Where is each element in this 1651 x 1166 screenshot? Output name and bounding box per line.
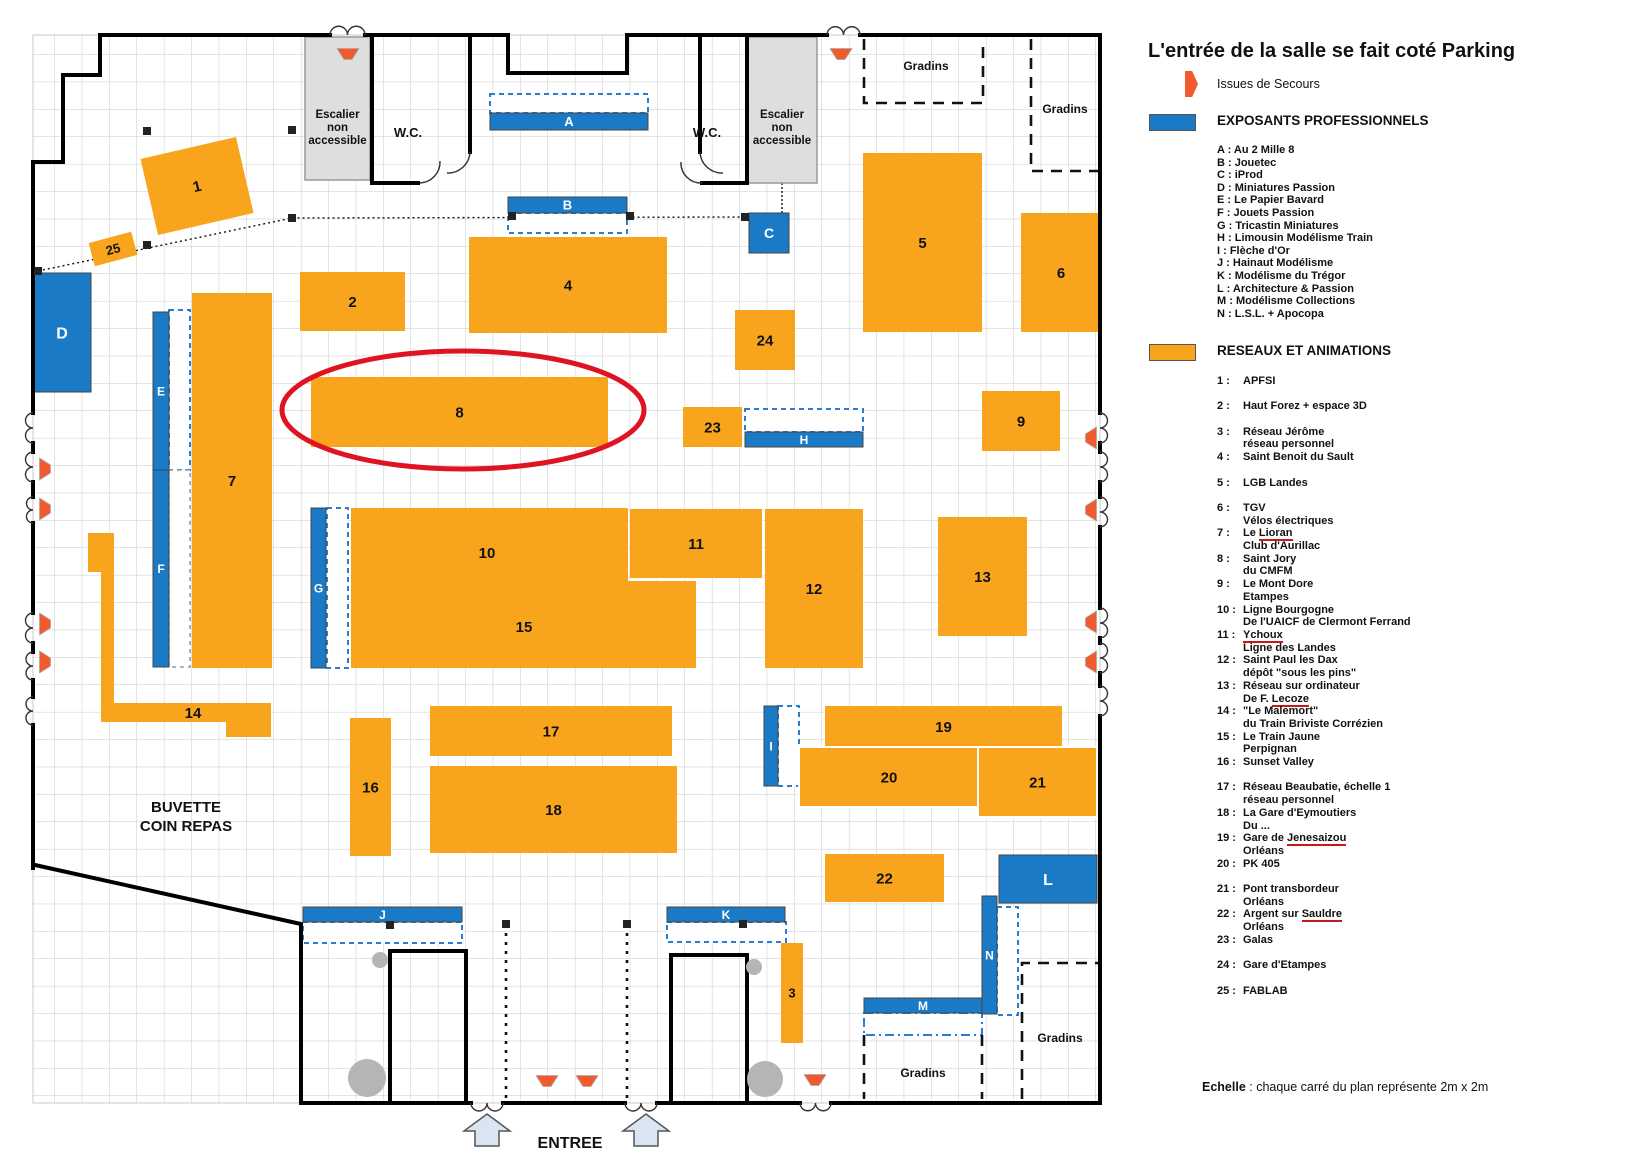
- network-item-23: 23 :Galas: [1217, 934, 1411, 947]
- booth-label-13: 13: [974, 569, 991, 586]
- legend-panel: L'entrée de la salle se fait coté Parkin…: [1140, 38, 1645, 1118]
- booth-label-8: 8: [455, 404, 463, 421]
- network-item-10: 10 :Ligne BourgogneDe l'UAICF de Clermon…: [1217, 604, 1411, 629]
- booth-C: C: [749, 213, 789, 253]
- plan-label: 10: [479, 545, 496, 562]
- pillar-marker: [34, 267, 42, 275]
- booth-label-B: B: [563, 198, 572, 213]
- network-item-21: 21 :Pont transbordeurOrléans: [1217, 883, 1411, 908]
- pillar-marker: [626, 212, 634, 220]
- booth-5: 5: [863, 153, 982, 332]
- svg-text:Escalier: Escalier: [315, 109, 360, 121]
- pillar-marker: [623, 920, 631, 928]
- exhibitor-item-F: F : Jouets Passion: [1217, 207, 1373, 220]
- pillar-marker: [143, 241, 151, 249]
- booth-label-18: 18: [545, 802, 562, 819]
- booth-20: 20: [799, 747, 979, 807]
- plan-label: ENTREE: [538, 1135, 603, 1152]
- network-item-18: 18 :La Gare d'EymoutiersDu ...: [1217, 807, 1411, 832]
- plan-label: 14: [185, 705, 202, 722]
- booth-label-3: 3: [788, 986, 795, 1001]
- plan-label: BUVETTE: [151, 799, 221, 816]
- exhibitor-item-G: G : Tricastin Miniatures: [1217, 220, 1373, 233]
- pillar-marker: [143, 127, 151, 135]
- reserved-dash-box: [169, 310, 190, 470]
- booth-6: 6: [1021, 213, 1101, 332]
- reserved-dash-box: [490, 94, 648, 113]
- booth-label-2: 2: [348, 294, 356, 311]
- exhibitor-item-L: L : Architecture & Passion: [1217, 283, 1373, 296]
- booth-label-20: 20: [881, 769, 898, 786]
- svg-text:non: non: [771, 122, 792, 134]
- booth-D: D: [33, 273, 91, 392]
- exhibitor-item-I: I : Flèche d'Or: [1217, 245, 1373, 258]
- booth-7: 7: [192, 293, 272, 668]
- booth-22: 22: [825, 854, 944, 902]
- booth-label-E: E: [157, 384, 165, 398]
- pillar-marker: [288, 126, 296, 134]
- booth-label-9: 9: [1017, 413, 1025, 430]
- network-item-12: 12 :Saint Paul les Daxdépôt "sous les pi…: [1217, 654, 1411, 679]
- booth-N: N: [982, 896, 997, 1014]
- plan-label: 15: [516, 619, 533, 636]
- pillar-marker: [288, 214, 296, 222]
- booth-label-19: 19: [935, 719, 952, 736]
- booth-label-H: H: [800, 433, 809, 447]
- booth-18: 18: [430, 766, 677, 853]
- booth-3: 3: [781, 943, 803, 1043]
- networks-header: RESEAUX ET ANIMATIONS: [1217, 343, 1391, 358]
- network-item-25: 25 :FABLAB: [1217, 985, 1411, 998]
- booth-24: 24: [735, 310, 795, 370]
- booth-G: G: [311, 508, 326, 668]
- exhibitor-item-A: A : Au 2 Mille 8: [1217, 144, 1373, 157]
- entrance-arrow-icon: [623, 1114, 669, 1146]
- booth-label-C: C: [764, 225, 774, 241]
- booth-23: 23: [683, 407, 742, 447]
- booth-label-M: M: [918, 999, 928, 1013]
- booth-J: J: [303, 907, 462, 922]
- booth-4: 4: [469, 237, 667, 333]
- booth-B: B: [508, 197, 627, 213]
- network-item-16: 16 :Sunset Valley: [1217, 756, 1411, 769]
- pillar-marker: [502, 920, 510, 928]
- network-item-13: 13 :Réseau sur ordinateurDe F. Lecoze: [1217, 680, 1411, 705]
- floor-plan: 12524245678239111213161718192021223DABCE…: [0, 0, 1130, 1166]
- booth-label-16: 16: [362, 779, 379, 796]
- pro-exhibitors-header: EXPOSANTS PROFESSIONNELS: [1217, 113, 1429, 128]
- scale-note: Echelle : chaque carré du plan représent…: [1202, 1080, 1488, 1094]
- pillar-marker: [386, 921, 394, 929]
- column-circle: [348, 1059, 386, 1097]
- network-item-2: 2 :Haut Forez + espace 3D: [1217, 400, 1411, 413]
- floor-plan-page: 12524245678239111213161718192021223DABCE…: [0, 0, 1651, 1166]
- network-item-14: 14 :"Le Malemort"du Train Briviste Corré…: [1217, 705, 1411, 730]
- exhibitor-item-C: C : iProd: [1217, 169, 1373, 182]
- booth-2: 2: [300, 272, 405, 331]
- booth-E: E: [153, 312, 169, 470]
- network-item-8: 8 :Saint Jorydu CMFM: [1217, 553, 1411, 578]
- booth-M: M: [864, 998, 982, 1013]
- network-item-19: 19 :Gare de JenesaizouOrléans: [1217, 832, 1411, 857]
- booth-label-A: A: [564, 114, 574, 129]
- booth-16: 16: [350, 718, 391, 856]
- booth-label-23: 23: [704, 419, 721, 436]
- exhibitor-item-N: N : L.S.L. + Apocopa: [1217, 308, 1373, 321]
- network-item-15: 15 :Le Train JaunePerpignan: [1217, 731, 1411, 756]
- network-item-1: 1 :APFSI: [1217, 375, 1411, 388]
- booth-9: 9: [982, 391, 1060, 451]
- booth-19: 19: [825, 706, 1062, 747]
- booth-label-6: 6: [1057, 265, 1065, 282]
- booth-8: 8: [311, 377, 608, 447]
- network-list: 1 :APFSI2 :Haut Forez + espace 3D3 :Rése…: [1217, 375, 1411, 997]
- svg-text:Escalier: Escalier: [760, 109, 805, 121]
- plan-label: W.C.: [693, 125, 721, 140]
- booth-label-7: 7: [228, 473, 236, 490]
- network-item-20: 20 :PK 405: [1217, 858, 1411, 871]
- network-item-4: 4 :Saint Benoit du Sault: [1217, 451, 1411, 464]
- network-item-9: 9 :Le Mont DoreEtampes: [1217, 578, 1411, 603]
- reserved-dash-box: [864, 1013, 982, 1035]
- stair-room: Escaliernonaccessible: [305, 37, 370, 180]
- booth-label-G: G: [314, 581, 323, 595]
- svg-text:accessible: accessible: [753, 135, 811, 147]
- network-item-7: 7 :Le LioranClub d'Aurillac: [1217, 527, 1411, 552]
- booth-label-J: J: [379, 908, 386, 922]
- booth-F: F: [153, 470, 169, 667]
- exhibitor-item-K: K : Modélisme du Trégor: [1217, 270, 1373, 283]
- reserved-dash-box: [667, 922, 786, 942]
- legend-title: L'entrée de la salle se fait coté Parkin…: [1148, 40, 1515, 63]
- booth-I: I: [764, 706, 778, 786]
- booth-label-17: 17: [543, 723, 560, 740]
- entrance-arrow-icon: [464, 1114, 510, 1146]
- network-item-17: 17 :Réseau Beaubatie, échelle 1réseau pe…: [1217, 781, 1411, 806]
- reserved-dash-box: [508, 213, 627, 233]
- booth-label-L: L: [1043, 872, 1053, 889]
- emergency-exit-label: Issues de Secours: [1217, 77, 1320, 91]
- booth-13: 13: [938, 517, 1027, 636]
- pillar-marker: [508, 212, 516, 220]
- reserved-dash-box: [778, 706, 799, 786]
- booth-label-24: 24: [757, 332, 774, 349]
- networks-swatch: [1149, 344, 1196, 361]
- booth-12: 12: [765, 509, 863, 668]
- pillar-marker: [741, 213, 749, 221]
- booth-label-4: 4: [564, 277, 573, 294]
- network-item-5: 5 :LGB Landes: [1217, 477, 1411, 490]
- exhibitor-item-B: B : Jouetec: [1217, 157, 1373, 170]
- exhibitor-item-J: J : Hainaut Modélisme: [1217, 257, 1373, 270]
- exhibitor-item-E: E : Le Papier Bavard: [1217, 194, 1373, 207]
- svg-text:accessible: accessible: [308, 135, 366, 147]
- booth-label-11: 11: [688, 536, 704, 553]
- reserved-dash-box: [997, 907, 1018, 1015]
- booth-label-K: K: [722, 908, 731, 922]
- reserved-dash-box: [745, 409, 863, 432]
- booth-label-12: 12: [806, 581, 823, 598]
- reserved-dash-box: [327, 508, 348, 668]
- plan-label: Gradins: [900, 1066, 946, 1080]
- stair-room: Escaliernonaccessible: [747, 37, 817, 183]
- booth-label-D: D: [56, 325, 68, 342]
- network-item-24: 24 :Gare d'Etampes: [1217, 959, 1411, 972]
- booth-A: A: [490, 113, 648, 130]
- svg-text:non: non: [327, 122, 348, 134]
- network-item-11: 11 :YchouxLigne des Landes: [1217, 629, 1411, 654]
- emergency-exit-icon: [1185, 71, 1198, 97]
- booth-label-I: I: [769, 739, 772, 753]
- network-item-22: 22 :Argent sur SauldreOrléans: [1217, 908, 1411, 933]
- plan-label: Gradins: [1037, 1031, 1083, 1045]
- booth-label-5: 5: [918, 235, 926, 252]
- booth-label-21: 21: [1029, 774, 1046, 791]
- plan-label: Gradins: [903, 59, 949, 73]
- column-circle: [746, 959, 762, 975]
- plan-label: COIN REPAS: [140, 818, 232, 835]
- exhibitor-item-H: H : Limousin Modélisme Train: [1217, 232, 1373, 245]
- network-item-3: 3 :Réseau Jérômeréseau personnel: [1217, 426, 1411, 451]
- network-item-6: 6 :TGVVélos électriques: [1217, 502, 1411, 527]
- booth-11: 11: [630, 509, 762, 578]
- pro-exhibitors-swatch: [1149, 114, 1196, 131]
- exhibitor-item-M: M : Modélisme Collections: [1217, 295, 1373, 308]
- booth-H: H: [745, 432, 863, 447]
- column-circle: [372, 952, 388, 968]
- plan-label: Gradins: [1042, 102, 1088, 116]
- booth-17: 17: [430, 706, 672, 756]
- reserved-dash-box: [303, 922, 462, 943]
- exhibitor-item-D: D : Miniatures Passion: [1217, 182, 1373, 195]
- column-circle: [747, 1061, 783, 1097]
- booth-label-22: 22: [876, 870, 893, 887]
- plan-label: W.C.: [394, 125, 422, 140]
- pillar-marker: [739, 920, 747, 928]
- booth-L: L: [999, 855, 1097, 903]
- reserved-dash-box: [169, 470, 190, 667]
- booth-label-N: N: [985, 948, 994, 962]
- booth-K: K: [667, 907, 785, 922]
- booth-label-F: F: [157, 562, 164, 576]
- exhibitor-list: A : Au 2 Mille 8B : JouetecC : iProdD : …: [1217, 144, 1373, 320]
- booth-21: 21: [978, 747, 1097, 817]
